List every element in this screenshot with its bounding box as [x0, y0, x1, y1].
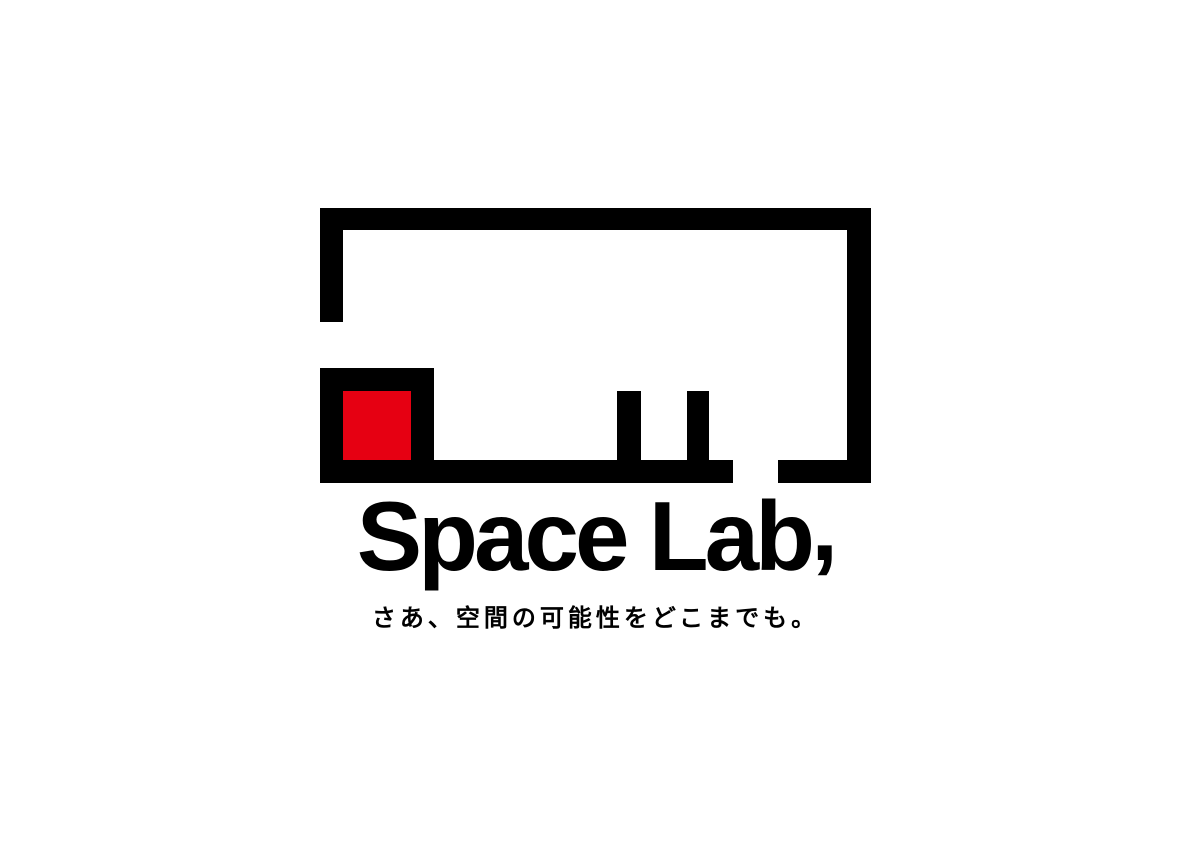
mark-red-accent-square: [343, 391, 411, 460]
mark-left-wall-upper: [320, 208, 343, 322]
mark-right-wall: [847, 208, 871, 483]
mark-bottom-wall-left: [320, 460, 733, 483]
mark-table-leg-1: [617, 391, 641, 460]
space-lab-logo-mark-icon: [320, 208, 871, 483]
mark-top-wall: [320, 208, 871, 230]
logo-page: Space Lab, さあ、空間の可能性をどこまでも。: [0, 0, 1191, 842]
wordmark-text: Space Lab: [357, 481, 811, 591]
mark-table-leg-2: [687, 391, 709, 460]
wordmark: Space Lab,: [0, 486, 1191, 586]
tagline: さあ、空間の可能性をどこまでも。: [0, 602, 1191, 636]
wordmark-comma: ,: [811, 476, 834, 576]
